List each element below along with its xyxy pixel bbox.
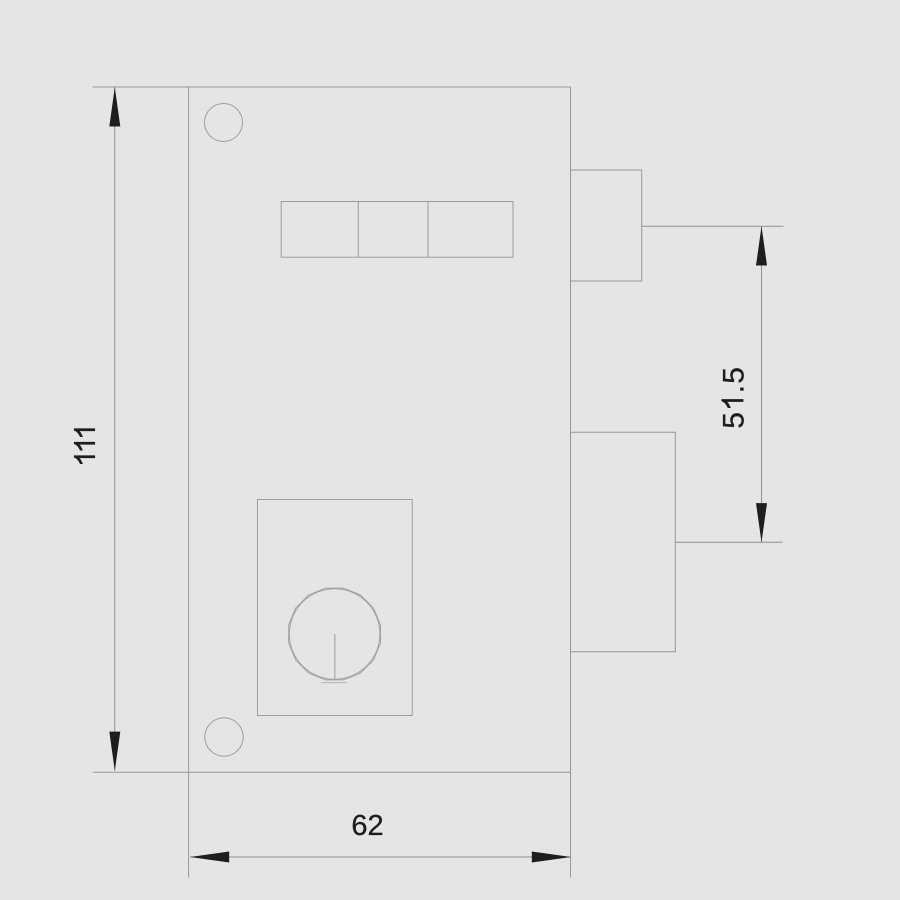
svg-text:5: 5	[717, 412, 750, 429]
svg-text:62: 62	[351, 810, 383, 842]
svg-text:.: .	[717, 385, 750, 393]
svg-text:5: 5	[717, 367, 750, 384]
